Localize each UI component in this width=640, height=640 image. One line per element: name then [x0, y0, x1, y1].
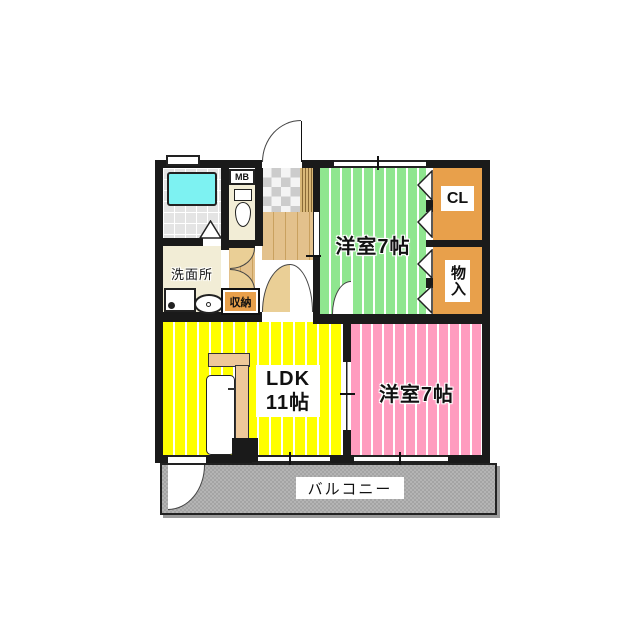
door-tick-green: [306, 255, 321, 257]
bedroom-green-label: 洋室7帖: [320, 230, 426, 259]
wall-right: [482, 160, 490, 463]
window-tick-pink: [399, 452, 401, 465]
window-bathroom-top: [166, 155, 200, 166]
sliding-door-green: [313, 212, 320, 256]
washroom-label: 洗面所: [163, 264, 221, 283]
washbasin-faucet: [206, 302, 211, 307]
wall-closet-divider: [426, 240, 490, 247]
storage-shuno: 収納: [221, 288, 260, 315]
wall-bottom-c: [330, 455, 354, 463]
wall-bottom-d: [448, 455, 490, 463]
wall-top-right: [426, 160, 490, 168]
bedroom-pink-label: 洋室7帖: [351, 378, 482, 407]
window-tick-ldk: [289, 452, 291, 465]
bath-folding-door-icon: [199, 220, 222, 240]
ldk-label-line1: LDK: [266, 367, 310, 391]
toilet-tank: [234, 189, 252, 201]
wall-toilet-bottom: [229, 240, 255, 248]
window-pink-bottom: [354, 455, 448, 463]
window-ldk-bottom: [252, 455, 330, 463]
wall-bottom-a: [155, 455, 168, 463]
folding-door-icon: [417, 285, 433, 314]
kitchen-unit-handle: [228, 388, 235, 390]
storage-shuno-label: 収納: [230, 294, 252, 310]
wall-ldk-pink-b: [343, 430, 351, 455]
closet-monoire-label: 物入: [447, 265, 468, 297]
wall-bath-washroom: [163, 238, 203, 246]
ldk-label-chip: LDK 11帖: [256, 365, 320, 417]
wall-ldk-pink-a: [343, 322, 351, 362]
floorplan: MB 収納 洋室7帖 洋室7帖 LDK 11帖 CL 物入 洗面所 バルコニー: [0, 0, 640, 640]
window-green-top: [334, 160, 426, 168]
window-tick-green: [377, 156, 379, 170]
entrance-genkan-tile: [262, 168, 300, 212]
ldk-label-line2: 11帖: [266, 391, 310, 415]
balcony-label-chip: バルコニー: [296, 477, 404, 499]
closet-cl-chip: CL: [441, 186, 474, 211]
kitchen-sink-unit: [206, 375, 235, 455]
closet-cl-label: CL: [447, 190, 468, 208]
kitchen-counter-side: [235, 365, 249, 441]
balcony-label: バルコニー: [308, 478, 393, 499]
entrance-step: [300, 168, 313, 212]
kitchen-stub-wall: [232, 438, 258, 462]
wall-toilet-hall: [255, 168, 263, 246]
closet-monoire-chip: 物入: [445, 260, 470, 302]
wall-washroom-nub: [221, 240, 229, 250]
entrance-door-arc: [262, 120, 301, 162]
meter-box-label: MB: [235, 172, 249, 182]
meter-box: MB: [229, 169, 255, 185]
balcony-door-opening: [168, 455, 206, 463]
wall-hall-green-a: [313, 168, 320, 212]
washer-drain: [168, 302, 175, 309]
wall-green-bottom: [313, 314, 490, 324]
bathtub: [167, 172, 217, 206]
wall-hall-green-b: [313, 256, 320, 314]
wall-bath-toilet: [221, 168, 229, 240]
sliding-door-pink: [343, 362, 351, 430]
folding-door-icon: [417, 170, 433, 201]
wall-top-mid: [302, 160, 334, 168]
